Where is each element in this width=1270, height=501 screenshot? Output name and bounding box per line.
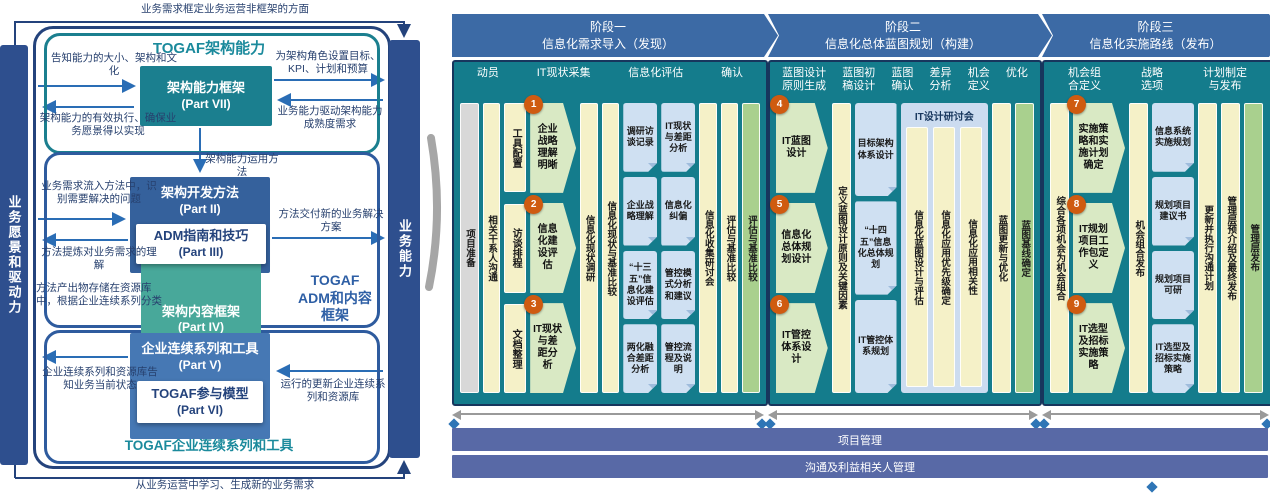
process-step: 信息化总体规划设计 [776, 203, 828, 293]
process-step: IT管控体系设计 [776, 303, 828, 393]
phase-column-header: 确认 [721, 67, 743, 80]
phase-column-header: 优化 [1006, 67, 1028, 80]
phase-duration-arrow [1042, 410, 1269, 426]
deliverable-doc: IT管控体系规划 [855, 300, 897, 393]
phase-3-columns: 综合各项机会为机会组合实施策略和实施计划确定7IT规划项目工作包定义8IT选型及… [1044, 103, 1270, 404]
part7-part: (Part VII) [181, 97, 230, 113]
docs-stack: 信息系统实施规划规划项目建议书规划项目可研IT选型及招标实施策略 [1152, 103, 1194, 393]
bar-label: 信息化收集研讨会 [703, 210, 713, 286]
phase-1-body: 动员IT现状采集信息化评估确认项目准备相关干系人沟通工具配置访谈排程文档整理企业… [452, 60, 768, 406]
step-number-badge: 4 [770, 95, 789, 114]
deliverable-doc: 管控流程及说明 [661, 324, 695, 393]
step-number-badge: 5 [770, 195, 789, 214]
process-step: IT选型及招标实施策略 [1073, 303, 1125, 393]
bar-label: 相关干系人沟通 [487, 215, 497, 282]
phase-column-header: 机会 定义 [968, 67, 990, 93]
phase-2-band: 阶段二 信息化总体蓝图规划（构建） [768, 14, 1052, 57]
phase-column-header: IT现状采集 [537, 67, 591, 80]
bar-label: 综合各项机会为机会组合 [1055, 196, 1065, 301]
deliverable-doc: “十三五”信息化建设评估 [623, 251, 657, 320]
phase-1-band: 阶段一 信息化需求导入（发现） [452, 14, 778, 57]
part3-part: (Part III) [179, 245, 224, 261]
task-box: 访谈排程 [504, 204, 526, 293]
bar-label: 更新并执行沟通计划 [1203, 205, 1213, 291]
phase-1-columns: 项目准备相关干系人沟通工具配置访谈排程文档整理企业战略理解明晰1信息化建设评估2… [454, 103, 766, 404]
milestone-diamond [1146, 481, 1157, 492]
phase-2: 阶段二 信息化总体蓝图规划（构建）蓝图设计 原则生成蓝图初 稿设计蓝图 确认差异… [768, 14, 1038, 406]
business-vision-bar: 业务愿景和驱动力 [0, 45, 28, 465]
business-capability-bar: 业务能力 [389, 40, 420, 458]
deliverable-doc: 信息系统实施规划 [1152, 103, 1194, 172]
deliverable-doc: 调研访谈记录 [623, 103, 657, 172]
activity-bar: 综合各项机会为机会组合 [1050, 103, 1069, 393]
activity-bar: 信息化应用优先级确定 [933, 127, 955, 387]
business-vision-label: 业务愿景和驱动力 [8, 195, 21, 315]
bar-label: 信息化现状与基准比较 [606, 201, 616, 296]
step-number-badge: 7 [1067, 95, 1086, 114]
note-maturity: 业务能力驱动架构能力成熟度需求 [276, 105, 384, 131]
business-capability-label: 业务能力 [398, 219, 411, 279]
step-number-badge: 6 [770, 295, 789, 314]
management-bar-1: 项目管理 [452, 428, 1268, 451]
phase-2-body: 蓝图设计 原则生成蓝图初 稿设计蓝图 确认差异 分析机会 定义优化IT蓝图设计4… [768, 60, 1042, 406]
bar-label: 定义蓝图设计原则及关键因素 [836, 186, 846, 310]
note-frame-top: 业务需求框定业务运营非框架的方面 [110, 3, 340, 16]
process-step-wrap: IT选型及招标实施策略9 [1073, 303, 1125, 393]
brace-curve [429, 138, 437, 287]
activity-bar: 定义蓝图设计原则及关键因素 [832, 103, 851, 393]
part2-part: (Part II) [179, 202, 220, 218]
process-step-wrap: 实施策略和实施计划确定7 [1073, 103, 1125, 193]
step-number-badge: 9 [1067, 295, 1086, 314]
note-delivers-solutions: 方法交付新的业务解决方案 [276, 208, 386, 234]
bar-label: 机会组合发布 [1134, 220, 1144, 277]
phase-column-header: 蓝图初 稿设计 [842, 67, 875, 93]
phase-column-header: 蓝图设计 原则生成 [782, 67, 826, 93]
part6-part: (Part VI) [177, 403, 223, 419]
activity-bar: 机会组合发布 [1129, 103, 1148, 393]
activity-bar: 管理层预介绍及最终发布 [1221, 103, 1240, 393]
part5-part: (Part V) [179, 358, 222, 374]
process-step: IT现状与差距分析 [530, 303, 576, 393]
bar-label: 项目准备 [465, 229, 475, 267]
activity-bar: 信息化现状调研 [580, 103, 598, 393]
adm-section-title: TOGAF ADM和内容 框架 [288, 272, 382, 325]
phase-2-headers: 蓝图设计 原则生成蓝图初 稿设计蓝图 确认差异 分析机会 定义优化 [770, 62, 1040, 103]
arrow-line [777, 413, 1029, 415]
part6-name: TOGAF参与模型 [151, 386, 248, 403]
part7-name: 架构能力框架 [167, 80, 245, 97]
phase-3: 阶段三 信息化实施路线（发布）机会组 合定义战略 选项计划制定 与发布综合各项机… [1042, 14, 1269, 406]
deliverable-doc: IT选型及招标实施策略 [1152, 324, 1194, 393]
activity-bar: 相关干系人沟通 [483, 103, 501, 393]
phase-2-title: 阶段二 信息化总体蓝图规划（构建） [825, 19, 995, 51]
docs-stack: IT现状与差距分析信息化纠偏管控模式分析和建议管控流程及说明 [661, 103, 695, 393]
note-set-targets: 为架构角色设置目标、KPI、计划和预算 [272, 50, 384, 76]
deliverable-doc: 管控模式分析和建议 [661, 251, 695, 320]
part3-name: ADM指南和技巧 [154, 228, 249, 245]
docs-stack: 目标架构体系设计“十四五”信息化总体规划IT管控体系规划 [855, 103, 897, 393]
deliverable-doc: 目标架构体系设计 [855, 103, 897, 196]
bar-label: 蓝图更新与优化 [997, 215, 1007, 282]
steps-stack: IT蓝图设计4信息化总体规划设计5IT管控体系设计6 [776, 103, 828, 393]
deliverable-doc: 规划项目建议书 [1152, 177, 1194, 246]
process-step-wrap: IT现状与差距分析3 [530, 303, 576, 393]
note-informs-state: 企业连续系列和资源库告知业务当前状态 [40, 366, 160, 392]
bar-label: 蓝图基线确定 [1020, 220, 1030, 277]
activity-bar: 评估与基准比较 [721, 103, 739, 393]
note-operate-method: 架构能力运用方法 [202, 153, 282, 179]
phase-duration-arrow [452, 410, 764, 426]
milestone-bar: 管理层发布 [1244, 103, 1263, 393]
part4-name: 架构内容框架 [162, 304, 240, 321]
task-box: 文档整理 [504, 304, 526, 393]
phase-duration-arrow [768, 410, 1038, 426]
bar-label: 管理层预介绍及最终发布 [1226, 196, 1236, 301]
deliverable-doc: “十四五”信息化总体规划 [855, 201, 897, 294]
management-bar-label: 沟通及利益相关人管理 [805, 459, 915, 475]
activity-bar: 更新并执行沟通计划 [1198, 103, 1217, 393]
deliverable-doc: 信息化纠偏 [661, 177, 695, 246]
note-produces-content: 方法产出物存储在资源库中，根据企业连续系列分类 [36, 282, 164, 308]
note-effective-operation: 架构能力的有效执行、确保业务愿景得以实现 [38, 112, 178, 138]
process-step: IT规划项目工作包定义 [1073, 203, 1125, 293]
task-box: 工具配置 [504, 103, 526, 192]
activity-bar: 信息化现状与基准比较 [602, 103, 620, 393]
management-bar-label: 项目管理 [838, 432, 882, 448]
step-number-badge: 8 [1067, 195, 1086, 214]
deliverable-doc: 企业战略理解 [623, 177, 657, 246]
bar-label: 管理层发布 [1249, 224, 1259, 272]
note-updates-continuum: 运行的更新企业连续系列和资源库 [278, 378, 388, 404]
process-step-wrap: 信息化总体规划设计5 [776, 203, 828, 293]
workshop-container: IT设计研讨会信息化蓝图设计与评估信息化应用优先级确定信息化应用相关性 [901, 103, 989, 393]
phase-column-header: 信息化评估 [628, 67, 683, 80]
arrow-line [1051, 413, 1260, 415]
process-step: 实施策略和实施计划确定 [1073, 103, 1125, 193]
deliverable-doc: 规划项目可研 [1152, 251, 1194, 320]
task-label: 工具配置 [510, 128, 520, 168]
activity-bar: 信息化收集研讨会 [699, 103, 717, 393]
bar-label: 信息化应用相关性 [967, 219, 977, 295]
note-inform-size: 告知能力的大小、架构和文化 [50, 52, 178, 78]
bar-label: 评估与基准比较 [725, 215, 735, 282]
milestone-bar: 评估与基准比较 [742, 103, 760, 393]
bar-label: 信息化蓝图设计与评估 [913, 210, 923, 305]
process-step-wrap: IT管控体系设计6 [776, 303, 828, 393]
phase-column-header: 差异 分析 [930, 67, 952, 93]
process-step-wrap: IT规划项目工作包定义8 [1073, 203, 1125, 293]
phase-column-header: 动员 [477, 67, 499, 80]
workshop-label: IT设计研讨会 [905, 106, 985, 127]
activity-bar: 蓝图更新与优化 [992, 103, 1011, 393]
bar-label: 评估与基准比较 [746, 215, 756, 282]
togaf-planning-diagram: 业务愿景和驱动力 业务能力 TOGAF架构能力 TOGAF ADM和内容 框架 … [0, 0, 1270, 501]
activity-bar: 项目准备 [460, 103, 479, 393]
part2-name: 架构开发方法 [161, 185, 239, 202]
steps-stack: 实施策略和实施计划确定7IT规划项目工作包定义8IT选型及招标实施策略9 [1073, 103, 1125, 393]
bar-label: 信息化现状调研 [584, 215, 594, 282]
activity-bar: 信息化应用相关性 [960, 127, 982, 387]
togaf-diagram: 业务愿景和驱动力 业务能力 TOGAF架构能力 TOGAF ADM和内容 框架 … [0, 0, 452, 501]
deliverable-doc: IT现状与差距分析 [661, 103, 695, 172]
process-step: IT蓝图设计 [776, 103, 828, 193]
bar-label: 信息化应用优先级确定 [940, 210, 950, 305]
phase-column-header: 蓝图 确认 [891, 67, 913, 93]
docs-stack: 调研访谈记录企业战略理解“十三五”信息化建设评估两化融合差距分析 [623, 103, 657, 393]
workshop-bars: 信息化蓝图设计与评估信息化应用优先级确定信息化应用相关性 [905, 127, 985, 387]
phase-1-headers: 动员IT现状采集信息化评估确认 [454, 62, 766, 103]
phase-2-columns: IT蓝图设计4信息化总体规划设计5IT管控体系设计6定义蓝图设计原则及关键因素目… [770, 103, 1040, 404]
process-step-wrap: IT蓝图设计4 [776, 103, 828, 193]
phase-3-band: 阶段三 信息化实施路线（发布） [1042, 14, 1270, 57]
deliverable-doc: 两化融合差距分析 [623, 324, 657, 393]
milestone-bar: 蓝图基线确定 [1015, 103, 1034, 393]
note-need-feeds: 业务需求流入方法中，识别需要解决的问题 [40, 180, 158, 206]
phase-1: 阶段一 信息化需求导入（发现）动员IT现状采集信息化评估确认项目准备相关干系人沟… [452, 14, 764, 406]
note-refines-understanding: 方法提炼对业务需求的理解 [40, 246, 158, 272]
part5-name: 企业连续系列和工具 [141, 341, 258, 358]
phase-column-header: 计划制定 与发布 [1203, 67, 1247, 93]
process-step: 企业战略理解明晰 [530, 103, 576, 193]
activity-bar: 信息化蓝图设计与评估 [906, 127, 928, 387]
phase-3-body: 机会组 合定义战略 选项计划制定 与发布综合各项机会为机会组合实施策略和实施计划… [1042, 60, 1270, 406]
process-step-wrap: 企业战略理解明晰1 [530, 103, 576, 193]
tasks-stack: 工具配置访谈排程文档整理 [504, 103, 526, 393]
arrow-line [461, 413, 755, 415]
task-label: 访谈排程 [510, 228, 520, 268]
note-learning: 从业务运营中学习、生成新的业务需求 [110, 479, 340, 492]
steps-stack: 企业战略理解明晰1信息化建设评估2IT现状与差距分析3 [530, 103, 576, 393]
process-step-wrap: 信息化建设评估2 [530, 203, 576, 293]
phase-1-title: 阶段一 信息化需求导入（发现） [542, 19, 688, 51]
process-step: 信息化建设评估 [530, 203, 576, 293]
phase-3-title: 阶段三 信息化实施路线（发布） [1089, 19, 1235, 51]
phase-column-header: 机会组 合定义 [1068, 67, 1101, 93]
task-label: 文档整理 [510, 329, 520, 369]
phase-column-header: 战略 选项 [1141, 67, 1163, 93]
management-bar-2: 沟通及利益相关人管理 [452, 455, 1268, 478]
